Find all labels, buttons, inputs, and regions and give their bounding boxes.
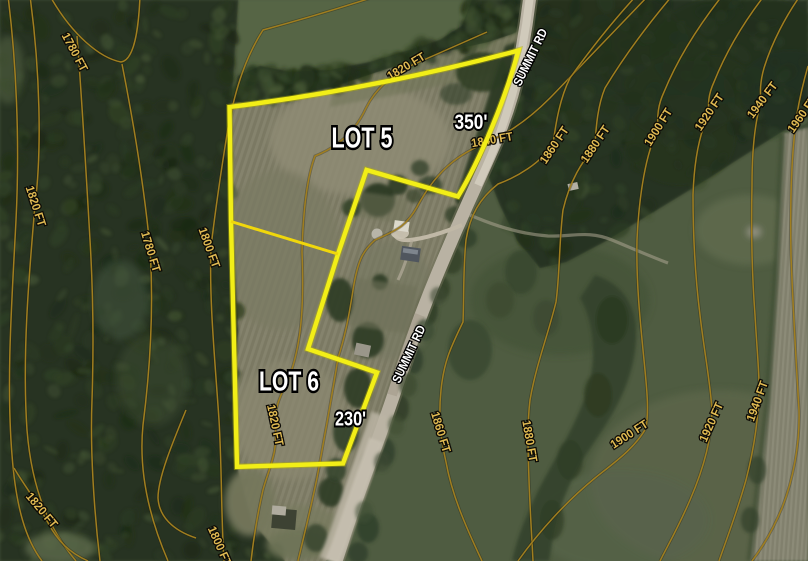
svg-text:LOT 6: LOT 6 [259, 365, 319, 396]
svg-text:LOT 5: LOT 5 [332, 123, 393, 155]
svg-text:350': 350' [455, 111, 488, 134]
svg-text:230': 230' [335, 408, 366, 431]
